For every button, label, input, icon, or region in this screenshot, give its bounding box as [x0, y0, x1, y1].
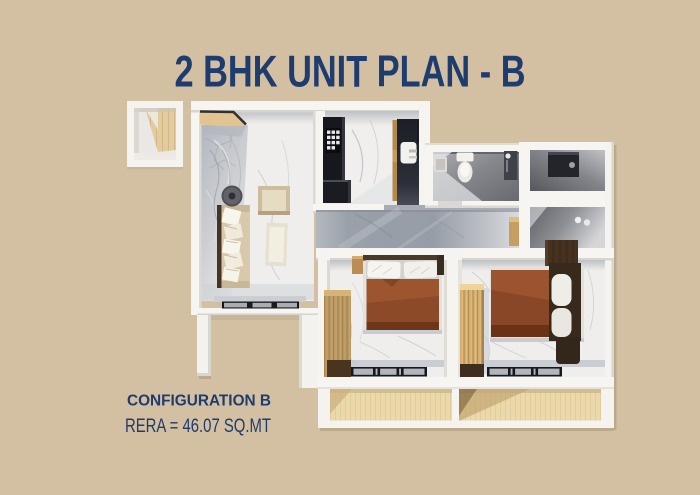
svg-text:CONFIGURATION B: CONFIGURATION B: [127, 393, 271, 410]
svg-text:2 BHK UNIT PLAN - B: 2 BHK UNIT PLAN - B: [175, 48, 526, 97]
svg-text:RERA = 46.07 SQ.MT: RERA = 46.07 SQ.MT: [125, 416, 271, 437]
